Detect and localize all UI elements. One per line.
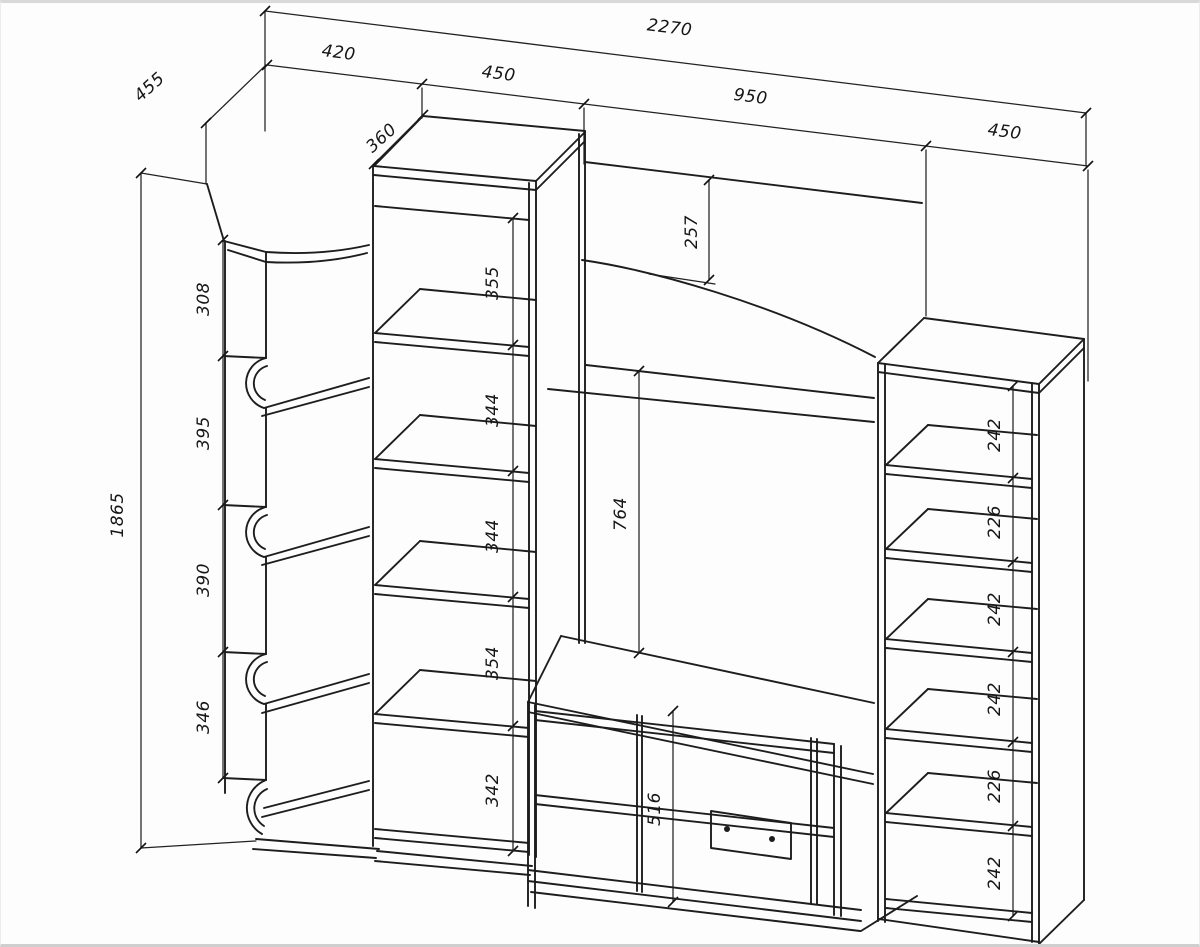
- drawing-line: [886, 599, 928, 639]
- drawing-line: [264, 527, 369, 557]
- dim-left-section-2: 390: [194, 563, 214, 597]
- drawing-line: [561, 636, 874, 703]
- dim-right-section-1: 226: [985, 505, 1005, 539]
- drawing-line: [423, 116, 585, 131]
- drawing-line: [724, 826, 730, 832]
- drawing-line: [535, 711, 834, 744]
- drawing-line: [886, 425, 928, 465]
- dim-arch-drop: 257: [682, 215, 702, 249]
- dim-niche-height: 764: [611, 497, 631, 531]
- dimension-tick: [369, 159, 379, 169]
- drawing-line: [928, 599, 1037, 609]
- dim-tower-section-0: 355: [483, 266, 503, 300]
- drawing-line: [246, 358, 266, 408]
- drawing-line: [548, 389, 874, 422]
- drawing-line: [420, 541, 536, 552]
- dim-total-height: 1865: [108, 492, 128, 537]
- drawing-line: [928, 425, 1037, 435]
- dim-tower-width: 450: [481, 62, 517, 86]
- drawing-line: [536, 141, 585, 190]
- drawing-line: [878, 318, 924, 363]
- right-shelf-tower: [878, 318, 1084, 944]
- drawing-line: [246, 507, 266, 557]
- drawing-line: [585, 162, 922, 203]
- dim-left-section-1: 395: [194, 416, 214, 450]
- drawing-line: [769, 836, 775, 842]
- dim-tower-section-1: 344: [483, 393, 503, 427]
- dim-left-depth: 455: [130, 68, 169, 106]
- furniture-dimension-drawing: 2270 420 450 950 450 455 360 1865 308 39…: [1, 3, 1199, 944]
- left-shelf-tower: [373, 116, 585, 875]
- drawing-line: [928, 509, 1037, 519]
- drawing-line: [223, 778, 266, 780]
- drawing-line: [141, 841, 256, 848]
- drawing-line: [374, 175, 536, 190]
- center-arch-section: [548, 162, 922, 422]
- drawing-line: [262, 683, 369, 713]
- drawing-line: [420, 289, 536, 300]
- dimension-ticks: [136, 6, 1093, 921]
- drawing-line: [141, 173, 207, 184]
- dim-tower-section-3: 354: [483, 646, 503, 680]
- drawing-line: [262, 536, 369, 565]
- drawing-line: [207, 184, 224, 241]
- drawing-line: [536, 132, 585, 181]
- drawing-line: [1039, 339, 1084, 384]
- drawing-line: [582, 260, 875, 357]
- drawing-line: [886, 509, 928, 549]
- tv-stand: [528, 636, 917, 931]
- drawing-line: [420, 670, 536, 681]
- drawing-line: [928, 689, 1037, 699]
- drawing-line: [264, 674, 369, 704]
- drawing-line: [375, 206, 529, 220]
- dimension-extension-lines: [141, 11, 1088, 848]
- drawing-line: [1039, 348, 1084, 393]
- drawing-line: [264, 378, 369, 408]
- drawing-line: [256, 839, 379, 849]
- drawing-line: [262, 387, 369, 416]
- drawing-line: [878, 363, 1039, 384]
- dim-left-width: 420: [321, 41, 357, 65]
- dim-tower-section-2: 344: [483, 519, 503, 553]
- drawing-line: [879, 919, 1039, 942]
- drawing-line: [375, 415, 420, 459]
- dimension-lines: [141, 11, 1088, 916]
- drawing-line: [886, 689, 928, 729]
- drawing-line: [254, 662, 267, 696]
- dim-right-section-2: 242: [985, 592, 1005, 626]
- dim-tower-depth: 360: [362, 119, 401, 157]
- dim-left-section-3: 346: [194, 700, 214, 734]
- drawing-line: [586, 365, 874, 398]
- drawing-line: [253, 849, 376, 858]
- drawing-line: [528, 636, 561, 702]
- drawing-line: [1039, 900, 1084, 944]
- drawing-line: [535, 804, 834, 837]
- left-curved-cabinet: [207, 184, 379, 858]
- drawing-line: [375, 289, 420, 333]
- dim-right-section-4: 226: [985, 769, 1005, 803]
- drawing-line: [254, 366, 267, 400]
- drawing-line: [420, 415, 536, 426]
- dim-center-width: 950: [733, 85, 769, 109]
- drawing-line: [878, 372, 1039, 393]
- drawing-line: [535, 720, 834, 753]
- drawing-line: [528, 712, 873, 784]
- dim-total-width: 2270: [646, 15, 693, 40]
- drawing-line: [223, 356, 266, 358]
- dim-tower-section-4: 342: [483, 773, 503, 807]
- drawing-line: [254, 515, 267, 549]
- drawing-line: [206, 65, 266, 123]
- dim-right-width: 450: [987, 120, 1023, 144]
- drawing-line: [246, 654, 266, 704]
- dim-right-section-5: 242: [985, 856, 1005, 890]
- dim-left-section-0: 308: [194, 282, 214, 316]
- drawing-line: [375, 670, 420, 714]
- drawing-line: [924, 318, 1084, 339]
- drawing-line: [886, 773, 928, 813]
- drawing-line: [374, 166, 536, 181]
- drawing-line: [375, 541, 420, 585]
- drawing-line: [228, 250, 367, 263]
- drawing-line: [224, 241, 369, 253]
- drawing-sheet: 2270 420 450 950 450 455 360 1865 308 39…: [0, 0, 1200, 947]
- dim-stand-height: 516: [645, 792, 665, 826]
- drawing-line: [223, 505, 266, 507]
- dim-right-section-3: 242: [985, 682, 1005, 716]
- dim-right-section-0: 242: [985, 418, 1005, 452]
- drawing-line: [223, 652, 266, 654]
- drawing-line: [928, 773, 1037, 783]
